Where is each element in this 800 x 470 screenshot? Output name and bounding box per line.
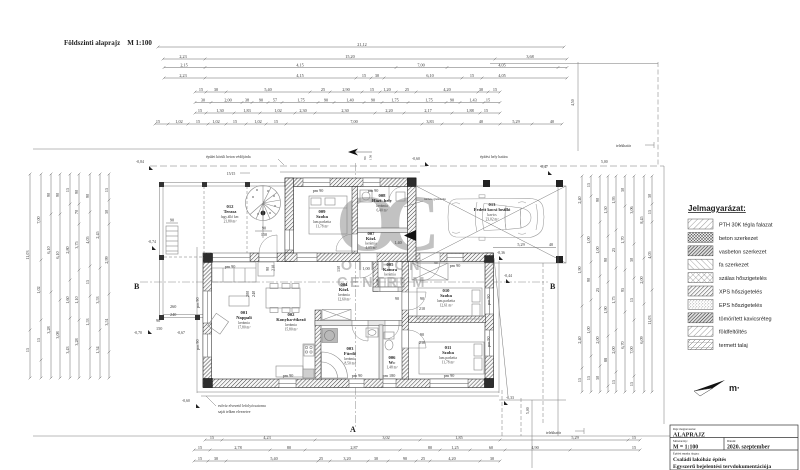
- svg-text:210: 210: [419, 340, 425, 345]
- svg-text:Földszinti alaprajz M 1:100: Földszinti alaprajz M 1:100: [64, 39, 152, 47]
- svg-text:15: 15: [198, 108, 202, 113]
- svg-text:Kamra: Kamra: [383, 267, 398, 272]
- svg-text:saját telken elvezetve: saját telken elvezetve: [218, 410, 251, 414]
- svg-text:15: 15: [647, 210, 652, 214]
- svg-text:lam.parketta: lam.parketta: [439, 356, 457, 360]
- svg-text:esővíz elvezető lefolyócsatorn: esővíz elvezető lefolyócsatorna: [218, 404, 266, 408]
- svg-text:pm 90: pm 90: [283, 373, 294, 378]
- svg-text:kerámia: kerámia: [384, 273, 396, 277]
- svg-text:90: 90: [363, 156, 367, 160]
- svg-text:15: 15: [196, 119, 200, 124]
- svg-text:Házt. hely: Házt. hely: [372, 198, 393, 203]
- svg-text:90: 90: [403, 456, 407, 461]
- svg-text:pm 90: pm 90: [313, 188, 324, 193]
- svg-text:210: 210: [271, 265, 276, 271]
- svg-text:telekhatár: telekhatár: [616, 144, 632, 148]
- svg-text:40: 40: [479, 119, 483, 124]
- svg-text:30: 30: [214, 87, 218, 92]
- svg-text:15: 15: [629, 382, 634, 386]
- svg-text:kerámia: kerámia: [376, 204, 388, 208]
- svg-text:25: 25: [321, 87, 325, 92]
- svg-text:90: 90: [371, 97, 375, 102]
- svg-text:pm 180: pm 180: [383, 373, 396, 378]
- svg-text:15: 15: [629, 298, 634, 302]
- svg-text:pm 90: pm 90: [486, 294, 491, 305]
- svg-text:60: 60: [489, 445, 493, 450]
- svg-text:Családi lakóház építés: Családi lakóház építés: [673, 457, 727, 463]
- svg-text:B: B: [550, 282, 556, 291]
- svg-text:25: 25: [319, 456, 323, 461]
- svg-text:kerámia: kerámia: [285, 323, 297, 327]
- svg-text:150: 150: [336, 266, 341, 272]
- svg-text:90: 90: [85, 194, 90, 198]
- svg-text:95: 95: [620, 288, 625, 292]
- svg-text:épület körüli beton védőjárda: épület körüli beton védőjárda: [206, 155, 251, 159]
- svg-text:15: 15: [210, 435, 214, 440]
- svg-text:pm 90: pm 90: [225, 264, 236, 269]
- svg-text:Fedett kocsi beálló: Fedett kocsi beálló: [474, 207, 511, 212]
- svg-text:15/15: 15/15: [227, 172, 236, 176]
- svg-text:Nappali: Nappali: [236, 315, 252, 320]
- svg-text:15: 15: [362, 73, 366, 78]
- svg-text:90: 90: [395, 296, 399, 301]
- svg-text:15: 15: [65, 188, 70, 192]
- svg-text:30: 30: [374, 456, 378, 461]
- svg-text:kerámia: kerámia: [338, 293, 350, 297]
- svg-text:EPS hőszigetelés: EPS hőszigetelés: [719, 303, 762, 309]
- svg-text:Szoba: Szoba: [316, 214, 328, 219]
- svg-text:15: 15: [274, 119, 278, 124]
- svg-text:90: 90: [46, 193, 51, 197]
- svg-text:30: 30: [595, 376, 600, 380]
- svg-text:Terasz: Terasz: [224, 209, 237, 214]
- svg-text:Közl.: Közl.: [339, 287, 349, 292]
- svg-text:30: 30: [104, 210, 109, 214]
- svg-text:80: 80: [428, 445, 432, 450]
- svg-text:90: 90: [586, 278, 591, 282]
- svg-text:15: 15: [198, 445, 202, 450]
- svg-text:150: 150: [156, 326, 162, 331]
- svg-text:M = 1:100: M = 1:100: [673, 445, 698, 451]
- svg-text:90: 90: [170, 218, 174, 223]
- svg-text:15: 15: [36, 338, 41, 342]
- svg-text:pm 90: pm 90: [486, 336, 491, 347]
- svg-text:260: 260: [170, 304, 176, 309]
- svg-text:Egyszerű bejelentési tervdokum: Egyszerű bejelentési tervdokumentációja: [673, 464, 771, 470]
- svg-text:90: 90: [259, 97, 263, 102]
- svg-text:90: 90: [265, 267, 270, 271]
- svg-text:Építési munka tárgya:: Építési munka tárgya:: [673, 451, 699, 456]
- svg-text:tömörített kavicsréteg: tömörített kavicsréteg: [719, 316, 772, 322]
- svg-text:25: 25: [595, 288, 600, 292]
- svg-text:Szoba: Szoba: [440, 293, 452, 298]
- svg-text:240: 240: [251, 291, 256, 297]
- svg-text:kavics: kavics: [487, 213, 497, 217]
- svg-text:210: 210: [419, 306, 425, 311]
- svg-text:25: 25: [421, 456, 425, 461]
- svg-text:Fürdő: Fürdő: [344, 351, 357, 356]
- svg-text:90: 90: [156, 318, 160, 323]
- svg-text:15: 15: [370, 87, 374, 92]
- svg-text:Jelmagyarázat:: Jelmagyarázat:: [688, 204, 746, 213]
- svg-text:200: 200: [245, 291, 250, 297]
- svg-text:90: 90: [603, 258, 608, 262]
- svg-text:30: 30: [629, 258, 634, 262]
- svg-text:2020. szeptember: 2020. szeptember: [727, 445, 770, 451]
- svg-text:57: 57: [273, 97, 277, 102]
- svg-text:15: 15: [198, 456, 202, 461]
- svg-text:lam.parketta: lam.parketta: [313, 220, 331, 224]
- svg-text:80: 80: [287, 445, 291, 450]
- svg-text:pm 90: pm 90: [195, 297, 200, 308]
- svg-text:30: 30: [201, 97, 205, 102]
- svg-text:XPS hőszigetelés: XPS hőszigetelés: [719, 290, 762, 296]
- svg-text:25: 25: [611, 248, 616, 252]
- svg-text:15: 15: [233, 119, 237, 124]
- svg-text:30: 30: [479, 87, 483, 92]
- svg-text:15: 15: [611, 380, 616, 384]
- svg-text:lam.parketta: lam.parketta: [437, 299, 455, 303]
- svg-text:15: 15: [484, 108, 488, 113]
- svg-text:90: 90: [450, 97, 454, 102]
- svg-text:kerámia: kerámia: [365, 242, 377, 246]
- svg-text:15: 15: [104, 188, 109, 192]
- svg-text:15: 15: [577, 378, 582, 382]
- svg-text:szálas hőszigetelés: szálas hőszigetelés: [719, 276, 767, 282]
- svg-text:telekhatár: telekhatár: [546, 431, 562, 435]
- svg-text:15: 15: [586, 376, 591, 380]
- svg-text:150: 150: [369, 155, 373, 160]
- svg-text:30: 30: [214, 456, 218, 461]
- svg-text:90: 90: [420, 332, 424, 337]
- svg-text:15: 15: [470, 73, 474, 78]
- svg-text:építési hely határa: építési hely határa: [480, 155, 508, 159]
- svg-text:Dátum:: Dátum:: [727, 439, 736, 443]
- svg-text:30: 30: [647, 194, 652, 198]
- svg-text:90: 90: [434, 261, 438, 265]
- svg-text:70: 70: [74, 210, 79, 214]
- svg-text:15: 15: [25, 348, 30, 352]
- svg-text:40: 40: [550, 119, 554, 124]
- svg-text:90: 90: [595, 198, 600, 202]
- svg-text:pm 90: pm 90: [444, 373, 455, 378]
- svg-text:15: 15: [493, 87, 497, 92]
- svg-text:25: 25: [405, 87, 409, 92]
- svg-text:Konyha-étkező: Konyha-étkező: [276, 317, 306, 322]
- svg-text:15: 15: [486, 97, 490, 102]
- svg-text:ALAPRAJZ: ALAPRAJZ: [673, 433, 705, 439]
- svg-text:Méretarány:: Méretarány:: [673, 439, 688, 443]
- svg-text:fagy.álló ker.: fagy.álló ker.: [221, 215, 240, 219]
- svg-text:PTH 30K tégla falazat: PTH 30K tégla falazat: [719, 223, 773, 229]
- svg-text:vasbeton szerkezet: vasbeton szerkezet: [719, 249, 767, 255]
- svg-text:15: 15: [586, 183, 591, 187]
- svg-text:turbós gázkazán: turbós gázkazán: [424, 197, 446, 201]
- svg-text:pm 90: pm 90: [450, 263, 461, 268]
- svg-text:38: 38: [245, 97, 249, 102]
- svg-text:beton szerkezet: beton szerkezet: [719, 236, 758, 242]
- svg-text:90: 90: [324, 97, 328, 102]
- svg-text:pm 90: pm 90: [368, 188, 379, 193]
- svg-text:kerámia: kerámia: [238, 321, 250, 325]
- svg-text:220: 220: [375, 279, 379, 284]
- svg-text:15: 15: [156, 119, 160, 124]
- svg-text:240: 240: [170, 312, 176, 317]
- svg-text:m·: m·: [729, 383, 740, 393]
- svg-text:pm 90: pm 90: [352, 373, 363, 378]
- svg-text:kerámia: kerámia: [344, 357, 356, 361]
- svg-text:fa szerkezet: fa szerkezet: [719, 263, 749, 269]
- svg-text:40: 40: [549, 242, 553, 247]
- svg-text:B: B: [134, 282, 140, 291]
- svg-text:Wc: Wc: [389, 360, 396, 365]
- svg-text:150: 150: [261, 232, 267, 237]
- svg-text:88: 88: [603, 358, 608, 362]
- svg-text:15: 15: [199, 87, 203, 92]
- svg-text:90: 90: [262, 226, 266, 231]
- svg-text:Rajz megnevezése:: Rajz megnevezése:: [673, 427, 696, 431]
- svg-text:Közl.: Közl.: [366, 236, 376, 241]
- svg-text:15: 15: [85, 280, 90, 284]
- svg-text:90: 90: [420, 296, 424, 301]
- svg-text:termett talaj: termett talaj: [719, 343, 748, 349]
- svg-text:30: 30: [375, 73, 379, 78]
- svg-text:pm 90: pm 90: [195, 339, 200, 350]
- svg-text:15: 15: [632, 435, 636, 440]
- svg-text:15: 15: [632, 445, 636, 450]
- svg-text:30: 30: [490, 456, 494, 461]
- svg-text:A: A: [350, 425, 356, 434]
- svg-text:90: 90: [74, 190, 79, 194]
- svg-text:30: 30: [620, 188, 625, 192]
- svg-text:földfeltöltés: földfeltöltés: [719, 330, 747, 336]
- svg-text:90: 90: [55, 193, 60, 197]
- svg-text:Szoba: Szoba: [442, 350, 454, 355]
